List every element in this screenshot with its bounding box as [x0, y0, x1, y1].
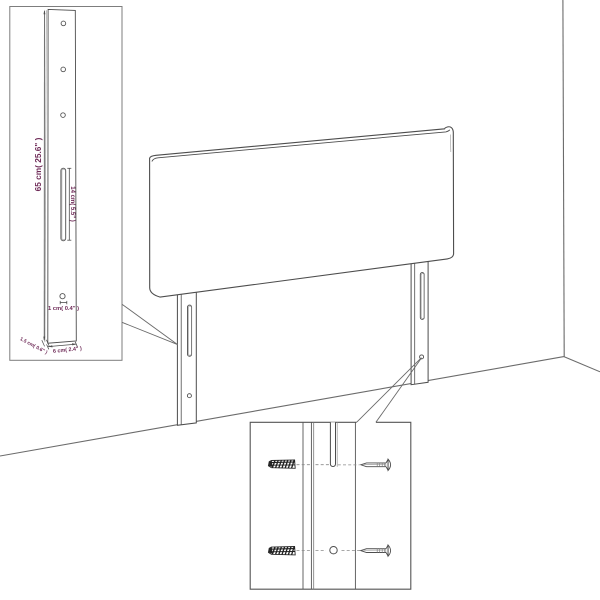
svg-text:65 cm( 25.6" ): 65 cm( 25.6" ): [33, 137, 43, 191]
svg-text:14 cm( 5.5" ): 14 cm( 5.5" ): [69, 186, 75, 222]
svg-text:1 cm( 0.4" ): 1 cm( 0.4" ): [48, 306, 79, 312]
